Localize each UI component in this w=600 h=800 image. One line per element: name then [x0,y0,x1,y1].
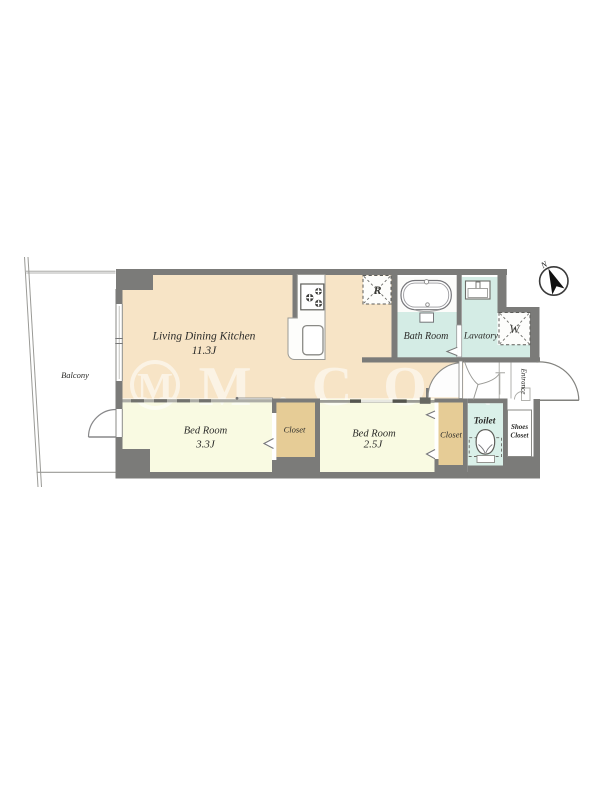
svg-text:Lavatory: Lavatory [463,332,499,342]
svg-text:R: R [372,283,381,297]
svg-text:Bed Room: Bed Room [184,426,228,437]
svg-text:M: M [199,356,252,418]
svg-text:3.3J: 3.3J [195,439,216,451]
svg-text:W: W [510,322,521,336]
svg-text:Closet: Closet [440,430,462,440]
svg-text:Living Dining Kitchen: Living Dining Kitchen [152,331,256,343]
svg-text:Closet: Closet [511,432,530,440]
svg-text:Toilet: Toilet [474,417,496,427]
svg-text:Balcony: Balcony [61,370,89,380]
svg-text:Entrance: Entrance [520,368,528,395]
svg-text:Closet: Closet [284,425,306,435]
svg-text:2.5J: 2.5J [364,439,384,451]
svg-text:O: O [383,356,427,418]
svg-text:Bath Room: Bath Room [404,331,449,342]
svg-text:Shoes: Shoes [511,423,528,431]
svg-text:11.3J: 11.3J [192,345,217,357]
